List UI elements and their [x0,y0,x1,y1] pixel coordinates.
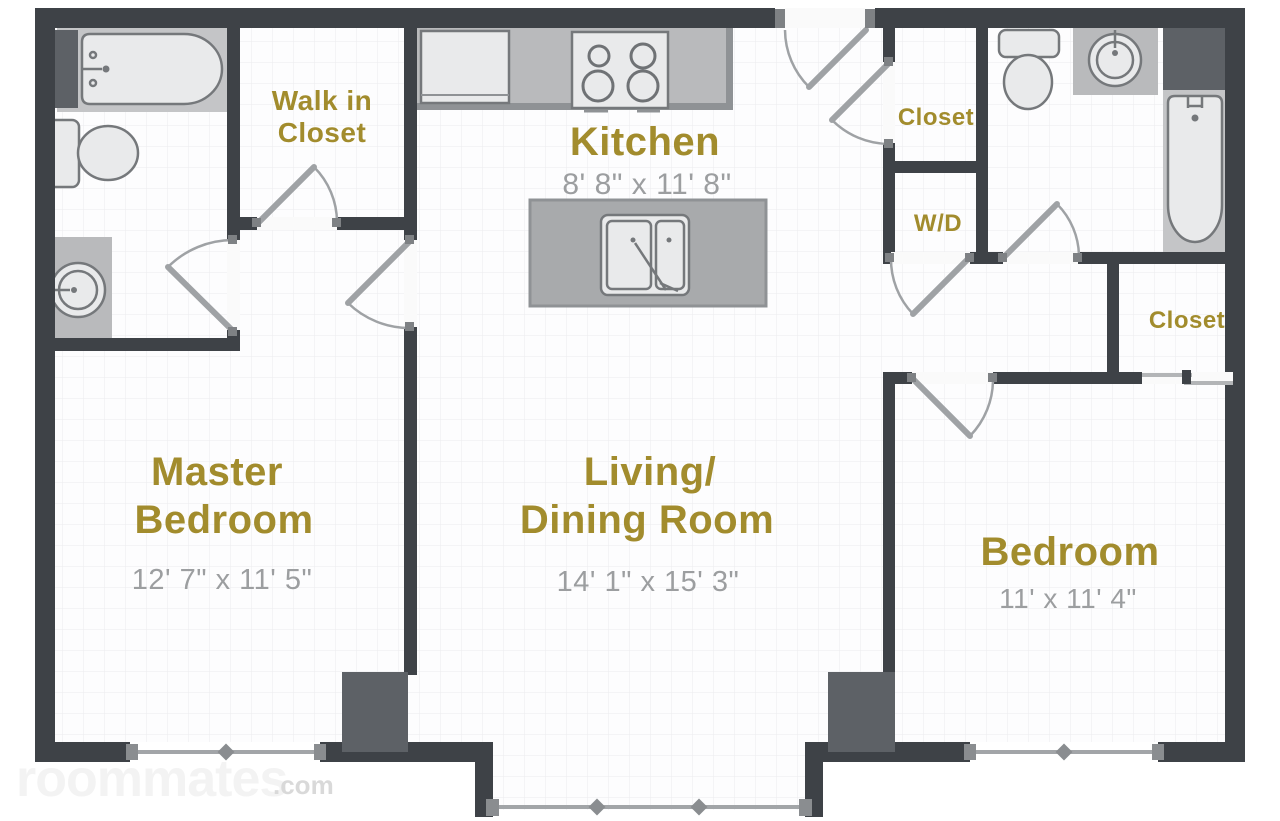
watermark: roommates .com [16,750,334,808]
window [964,744,1164,761]
counter-edge-right [726,28,733,110]
refrigerator-icon [421,31,509,103]
island-sink-icon [601,215,689,295]
master-bedroom-label: Bedroom [134,498,313,542]
living-dining-label: Dining Room [520,498,774,542]
master-bedroom-dims: 12' 7" x 11' 5" [132,564,313,596]
watermark-tld: .com [273,770,334,800]
living-dining-label: Living/ [584,450,716,494]
hall-closet-label: Closet [898,104,974,131]
walk-in-closet-label: Closet [278,117,367,148]
shower-wall-block [55,30,78,108]
toilet-2-bowl-icon [1004,55,1052,109]
walk-in-closet-label: Walk in [272,85,372,116]
kitchen-dims: 8' 8" x 11' 8" [562,168,731,201]
kitchen-label: Kitchen [570,120,720,164]
master-bedroom-label: Master [151,450,283,494]
toilet-bowl-icon [78,126,138,180]
bath-counter-block [1163,28,1225,90]
bedroom-closet-label: Closet [1149,307,1225,334]
bedroom-dims: 11' x 11' 4" [999,583,1137,614]
floor-plan: Kitchen Walk in Closet Closet W/D Closet… [0,0,1280,821]
toilet-2-tank-icon [999,30,1059,57]
laundry-label: W/D [914,210,962,237]
bedroom-label: Bedroom [980,530,1159,574]
watermark-brand: roommates [16,750,287,808]
living-dining-dims: 14' 1" x 15' 3" [557,566,740,598]
